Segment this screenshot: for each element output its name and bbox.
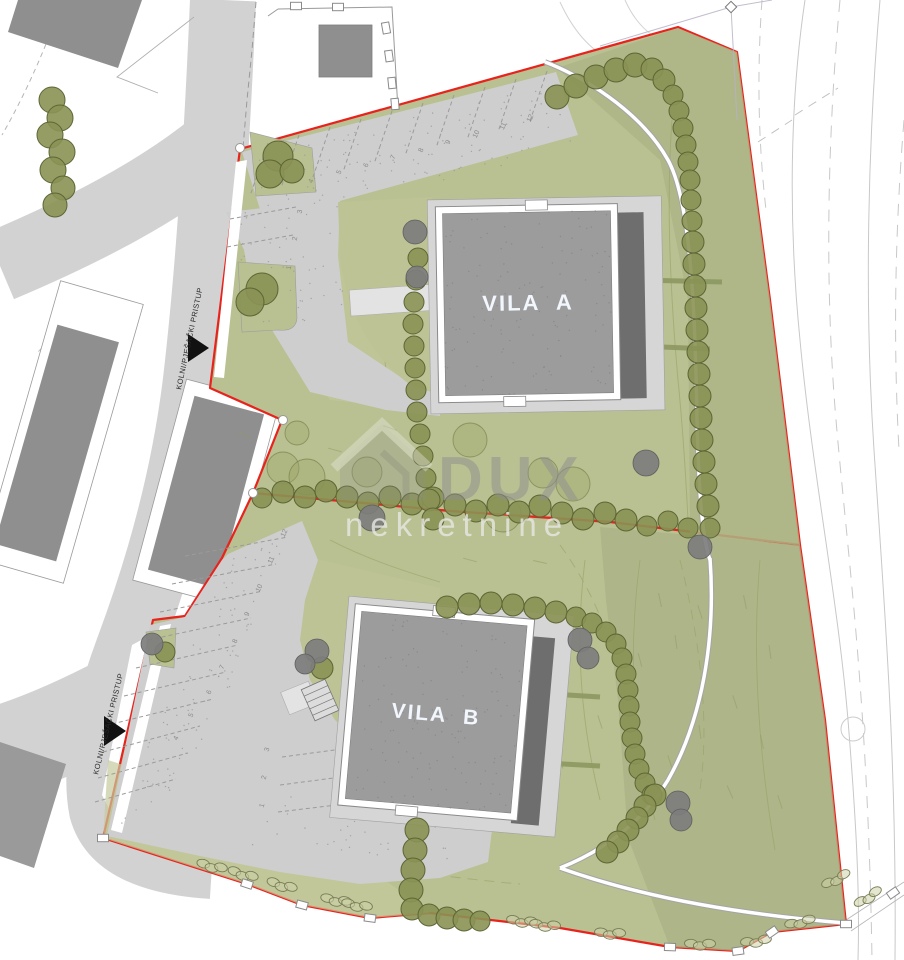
vila-a-building: VILA A	[427, 196, 665, 414]
building-topleft	[8, 0, 142, 68]
site-plan-page: 123456789101112 123456789101112 VILA A	[0, 0, 904, 960]
vila-a-label: VILA A	[482, 289, 574, 316]
vila-b-building: VILA B	[330, 596, 574, 837]
building-left-3	[0, 742, 66, 868]
vila-a-terrace	[616, 212, 646, 398]
watermark-brand: DUX	[438, 445, 584, 514]
site-plan-drawing: 123456789101112 123456789101112 VILA A	[0, 0, 904, 960]
watermark-subtitle: nekretnine	[345, 506, 569, 543]
building-left-1	[0, 281, 143, 583]
